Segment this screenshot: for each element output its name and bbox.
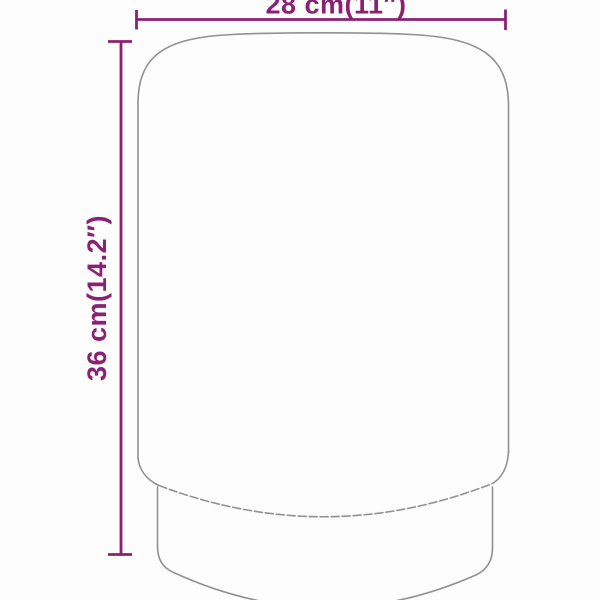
- footstool-body-bottom-left-corner: [138, 458, 159, 486]
- height-dimension-label: 36 cm(14.2″): [82, 215, 112, 381]
- dimension-diagram-svg: 28 cm(11″) 36 cm(14.2″): [0, 0, 600, 600]
- footstool-outline: [138, 33, 509, 600]
- product-dimension-diagram: 28 cm(11″) 36 cm(14.2″): [0, 0, 600, 600]
- width-dimension-label: 28 cm(11″): [265, 0, 406, 20]
- footstool-body-outline: [138, 33, 509, 458]
- footstool-body-bottom-right-corner: [493, 452, 509, 484]
- footstool-base-outline: [158, 487, 493, 600]
- footstool-seam-stitching: [159, 484, 493, 517]
